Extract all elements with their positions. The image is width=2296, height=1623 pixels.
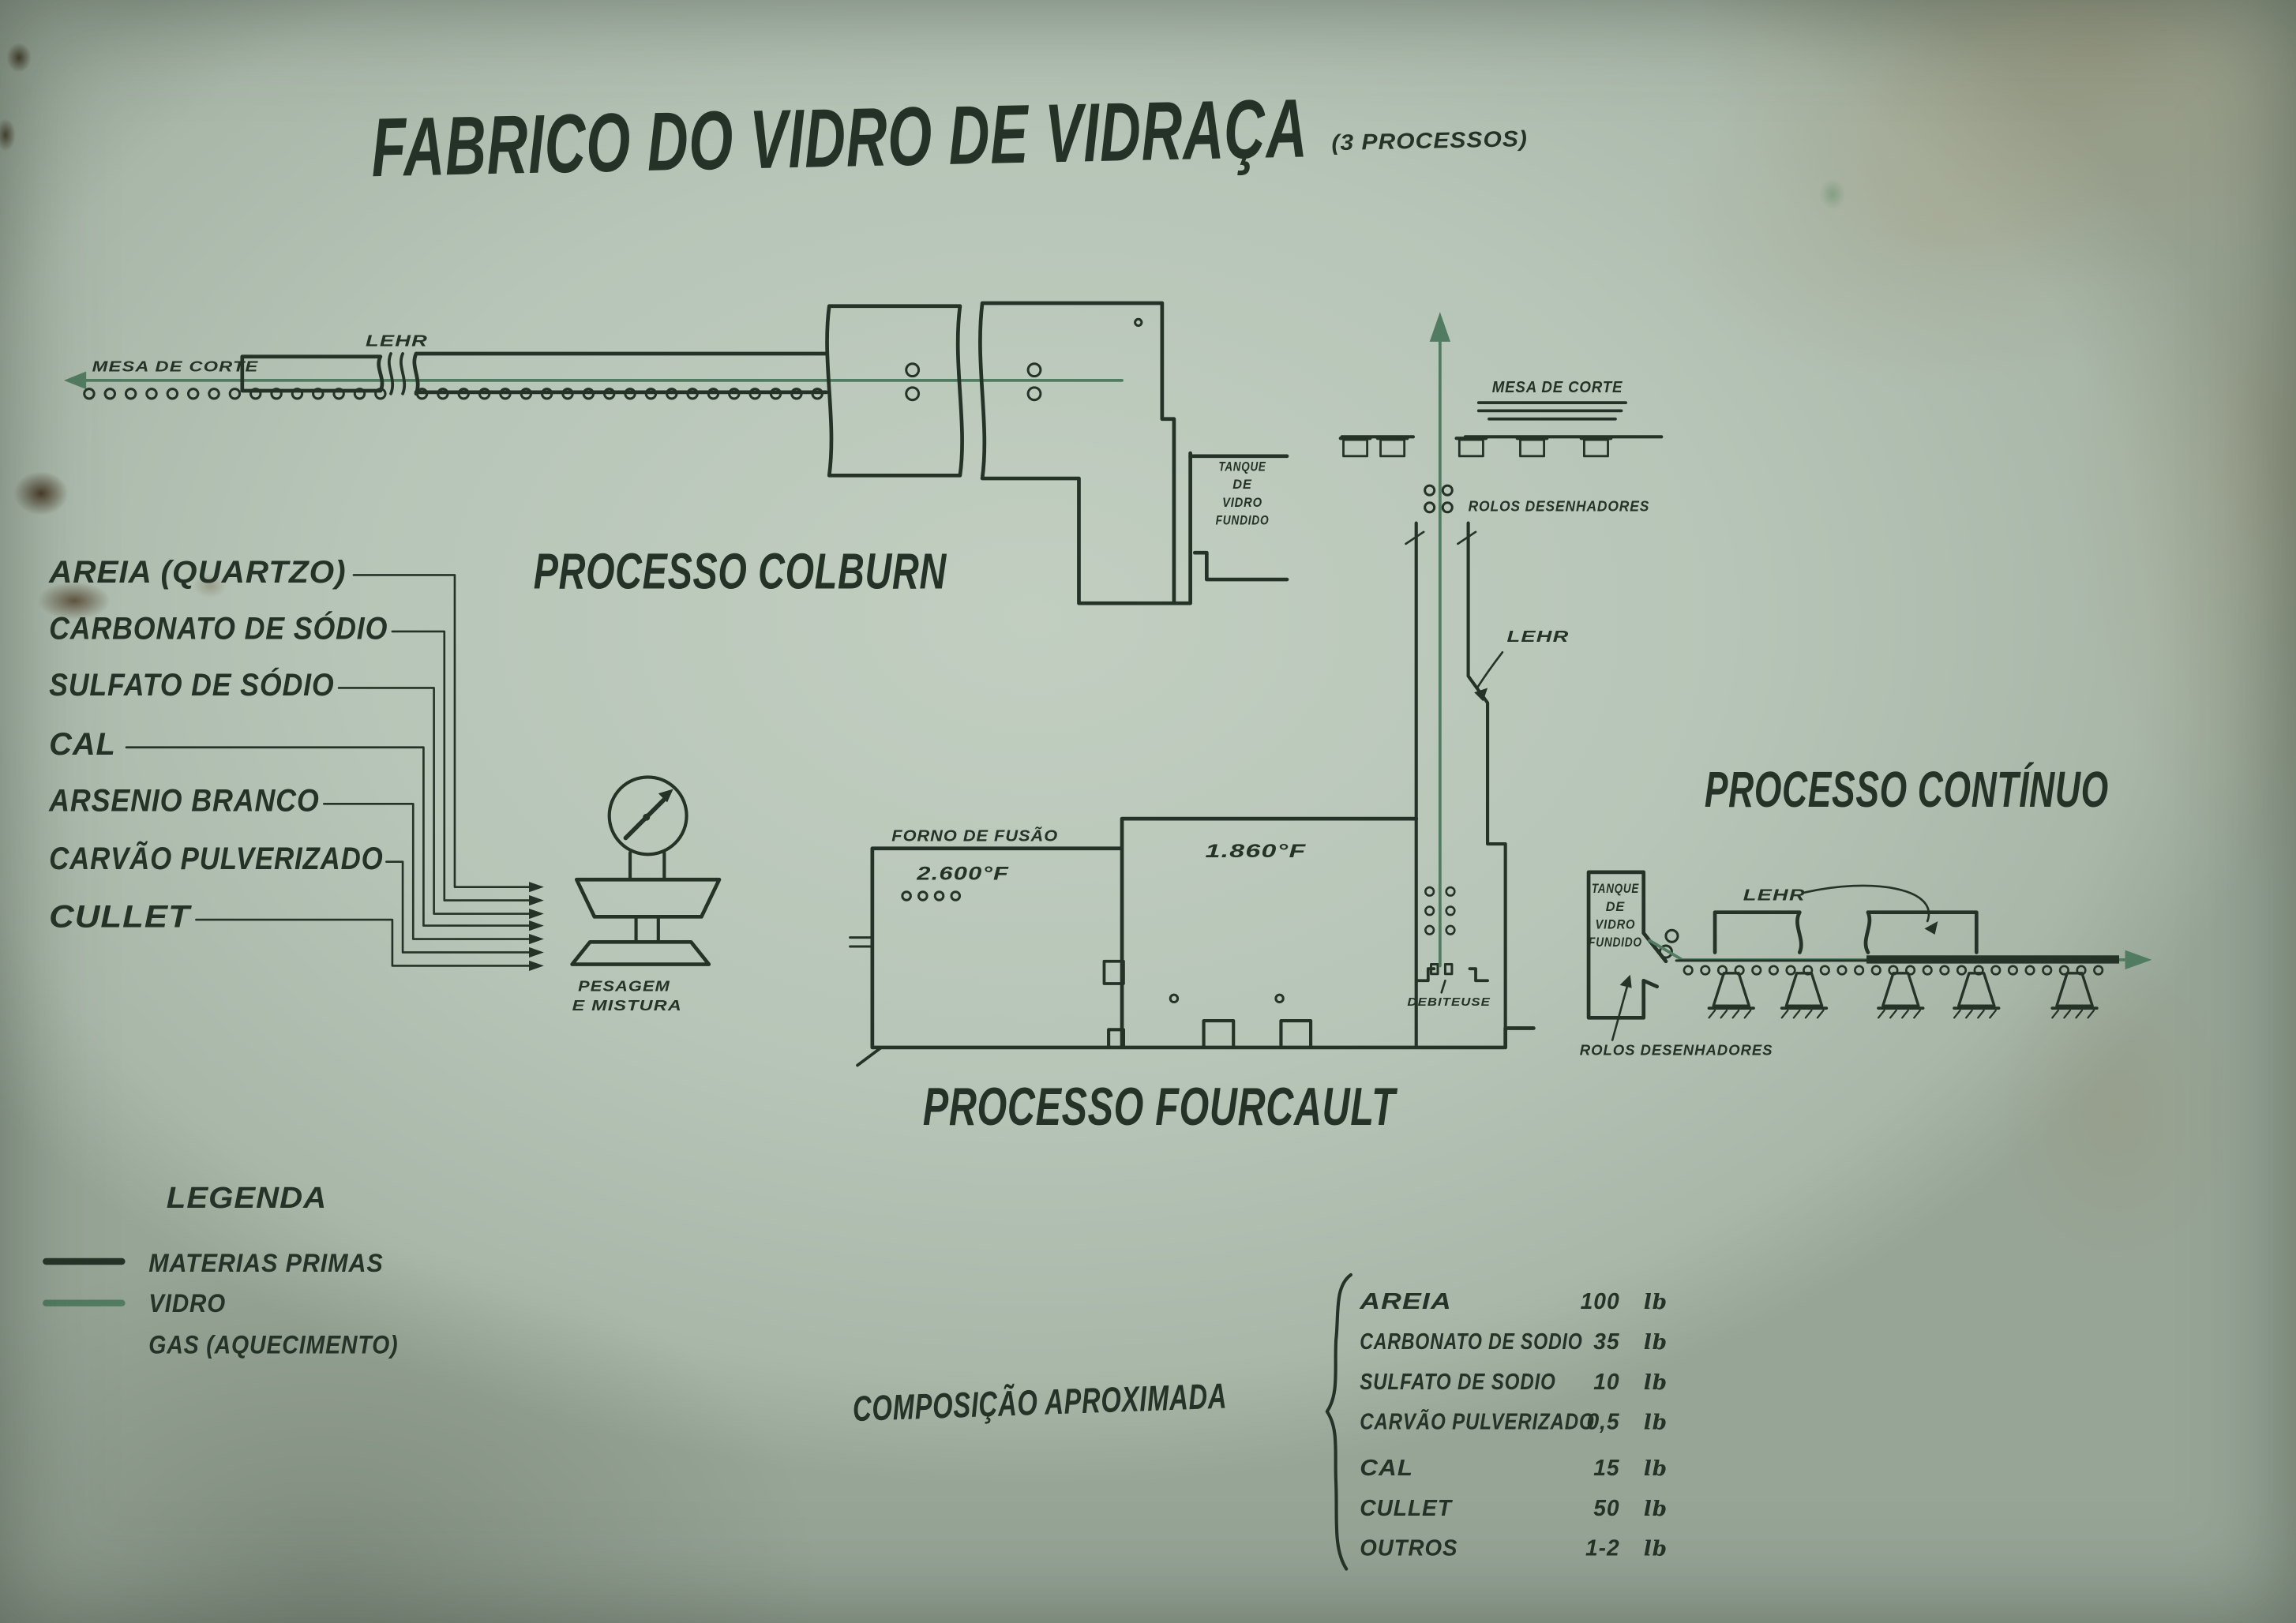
composition-brace [1327, 1275, 1351, 1569]
comp-name: CARBONATO DE SODIO [1360, 1329, 1582, 1354]
conveyor-support [1782, 973, 1826, 1018]
svg-text:DE: DE [1232, 477, 1251, 492]
temp-right: 1.860°F [1205, 841, 1306, 862]
legend-label: GAS (AQUECIMENTO) [148, 1331, 398, 1359]
comp-unit: lb [1644, 1537, 1668, 1561]
weigh-label-line2: E MISTURA [572, 997, 682, 1014]
continuo-title: PROCESSO CONTÍNUO [1705, 761, 2109, 818]
colburn-machine-rollers [906, 319, 1142, 399]
colburn-machine-boxA [827, 306, 962, 476]
composition: COMPOSIÇÃO APROXIMADA AREIA 100 lb CARBO… [852, 1275, 1668, 1569]
comp-value: 50 [1593, 1495, 1619, 1520]
comp-value: 10 [1593, 1369, 1619, 1394]
continuo-lehr-box2 [1866, 913, 1976, 953]
comp-name: CULLET [1360, 1495, 1454, 1520]
continuo-rolos-arrowhead [1620, 975, 1632, 988]
page-title-text: FABRICO DO VIDRO DE VIDRAÇA [370, 82, 1308, 194]
continuo-lehr-label: LEHR [1743, 886, 1806, 905]
forno-de-fusao-label: FORNO DE FUSÃO [891, 826, 1058, 845]
weigh-label-line1: PESAGEM [578, 977, 670, 994]
comp-value: 35 [1593, 1329, 1620, 1354]
fourcault-mesa-label: MESA DE CORTE [1492, 378, 1623, 396]
scale-base [572, 942, 709, 964]
process-fourcault: PROCESSO FOURCAULT FORNO DE FUSÃO 2.600°… [857, 312, 1661, 1137]
furnace-bottom-notches [1109, 1021, 1311, 1048]
comp-value: 0,5 [1587, 1409, 1620, 1434]
colburn-mesa-de-corte-label: MESA DE CORTE [92, 358, 259, 375]
comp-name: AREIA [1359, 1288, 1452, 1314]
comp-unit: lb [1644, 1370, 1668, 1395]
legend-label: MATERIAS PRIMAS [148, 1249, 383, 1277]
scale-stem [636, 916, 658, 942]
material-arrowheads [529, 882, 544, 971]
continuo-glass-arrowhead [2125, 950, 2152, 969]
material-label: SULFATO DE SÓDIO [49, 668, 334, 703]
svg-text:FUNDIDO: FUNDIDO [1589, 935, 1642, 950]
colburn-lehr-box2 [415, 354, 827, 394]
furnace-left-chute [857, 1048, 881, 1066]
scale-needle-hub [643, 814, 650, 821]
comp-value: 1-2 [1585, 1535, 1620, 1561]
fourcault-title: PROCESSO FOURCAULT [923, 1078, 1398, 1137]
composition-rows: AREIA 100 lb CARBONATO DE SODIO 35 lb SU… [1359, 1288, 1668, 1561]
svg-text:TANQUE: TANQUE [1592, 881, 1639, 896]
continuo-lehr-leader [1803, 886, 1929, 921]
scale-hopper [576, 879, 719, 916]
colburn-machine-boxB [980, 303, 1190, 603]
material-label: CARBONATO DE SÓDIO [49, 611, 388, 646]
mesa-underlines [1479, 403, 1626, 419]
glass-manufacturing-diagram: FABRICO DO VIDRO DE VIDRAÇA (3 PROCESSOS… [0, 0, 2296, 1622]
legend-title: LEGENDA [167, 1181, 327, 1214]
continuo-conveyor-bar [1866, 955, 2119, 963]
comp-unit: lb [1644, 1497, 1668, 1521]
weigh-station: PESAGEM E MISTURA [572, 777, 872, 1014]
materials-list: AREIA (QUARTZO) CARBONATO DE SÓDIO SULFA… [48, 555, 544, 971]
composition-heading: COMPOSIÇÃO APROXIMADA [852, 1376, 1228, 1430]
material-label: CARVÃO PULVERIZADO [49, 841, 383, 876]
furnace-ports [902, 892, 1283, 1003]
debiteuse-pointer [1442, 980, 1446, 992]
svg-text:VIDRO: VIDRO [1596, 916, 1636, 931]
continuo-rolos-label: ROLOS DESENHADORES [1580, 1041, 1773, 1058]
comp-name: SULFATO DE SODIO [1360, 1369, 1555, 1394]
fourcault-glass-arrowhead [1430, 312, 1450, 342]
continuo-tank-label: TANQUE DE VIDRO FUNDIDO [1589, 881, 1642, 950]
material-label: CAL [49, 727, 116, 762]
colburn-tank-label: TANQUE DE VIDRO FUNDIDO [1216, 459, 1270, 528]
svg-text:TANQUE: TANQUE [1218, 459, 1266, 474]
scale-neck [630, 853, 664, 879]
svg-text:DE: DE [1606, 899, 1625, 914]
batch-feed-stub [850, 938, 872, 946]
furnace-outline [872, 819, 1534, 1048]
page-title-suffix: (3 PROCESSOS) [1331, 126, 1528, 155]
colburn-break-marks [389, 354, 404, 394]
legend: LEGENDA MATERIAS PRIMAS VIDRO GAS (AQUEC… [46, 1181, 398, 1359]
comp-value: 15 [1593, 1455, 1620, 1480]
material-label: ARSENIO BRANCO [48, 784, 319, 819]
continuo-rolos-arrow [1612, 980, 1629, 1040]
conveyor-support [1709, 973, 1754, 1018]
comp-unit: lb [1644, 1456, 1668, 1481]
colburn-title: PROCESSO COLBURN [534, 542, 947, 599]
svg-text:VIDRO: VIDRO [1222, 495, 1262, 510]
comp-unit: lb [1644, 1330, 1668, 1355]
legend-label: VIDRO [148, 1289, 226, 1318]
continuo-lehr-leader-arrowhead [1924, 921, 1938, 935]
debiteuse-label: DEBITEUSE [1407, 995, 1490, 1009]
colburn-glass-arrowhead [64, 372, 86, 390]
conveyor-support [1878, 973, 1923, 1018]
material-label: AREIA (QUARTZO) [48, 555, 346, 590]
scanned-paper: { "colors": { "paper": "#b7c5b8", "ink":… [0, 0, 2296, 1623]
fourcault-lehr-arrow [1477, 652, 1503, 688]
comp-value: 100 [1581, 1288, 1620, 1314]
comp-name: CARVÃO PULVERIZADO [1360, 1409, 1594, 1434]
page-title: FABRICO DO VIDRO DE VIDRAÇA (3 PROCESSOS… [370, 78, 1528, 195]
comp-name: OUTROS [1360, 1535, 1458, 1561]
conveyor-support [2052, 973, 2096, 1018]
comp-name: CAL [1360, 1455, 1413, 1480]
colburn-lehr-box1 [242, 357, 382, 391]
fourcault-rolos-label: ROLOS DESENHADORES [1469, 497, 1650, 514]
fourcault-lehr-label: LEHR [1507, 628, 1570, 646]
colburn-lehr-label: LEHR [366, 332, 428, 350]
temp-left: 2.600°F [916, 863, 1009, 884]
comp-unit: lb [1644, 1411, 1668, 1435]
process-continuo: PROCESSO CONTÍNUO TANQUE DE VIDRO FUNDID… [1580, 761, 2152, 1058]
material-label: CULLET [49, 899, 192, 934]
comp-unit: lb [1644, 1290, 1668, 1314]
svg-text:FUNDIDO: FUNDIDO [1216, 512, 1270, 527]
debiteuse-slot [1445, 965, 1451, 974]
continuo-lehr-box1 [1715, 913, 1801, 953]
conveyor-support [1954, 973, 1998, 1018]
